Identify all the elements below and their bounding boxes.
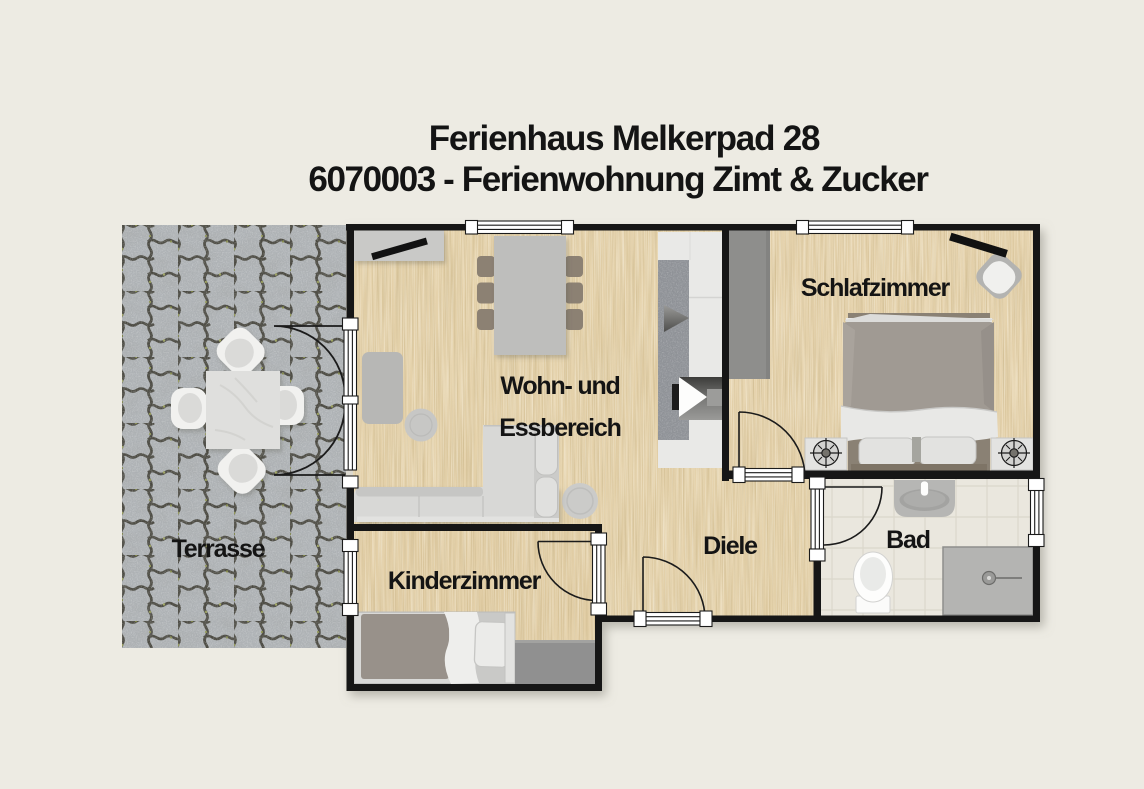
- svg-text:Bad: Bad: [886, 526, 930, 554]
- svg-text:6070003 - Ferienwohnung Zimt &: 6070003 - Ferienwohnung Zimt & Zucker: [308, 160, 929, 199]
- svg-text:Essbereich: Essbereich: [499, 414, 620, 442]
- svg-text:Diele: Diele: [703, 532, 758, 560]
- svg-text:Terrasse: Terrasse: [172, 535, 266, 563]
- svg-text:Kinderzimmer: Kinderzimmer: [388, 567, 542, 595]
- svg-text:Ferienhaus Melkerpad 28: Ferienhaus Melkerpad 28: [429, 119, 820, 158]
- svg-text:Schlafzimmer: Schlafzimmer: [801, 274, 951, 302]
- svg-text:Wohn- und: Wohn- und: [500, 372, 619, 400]
